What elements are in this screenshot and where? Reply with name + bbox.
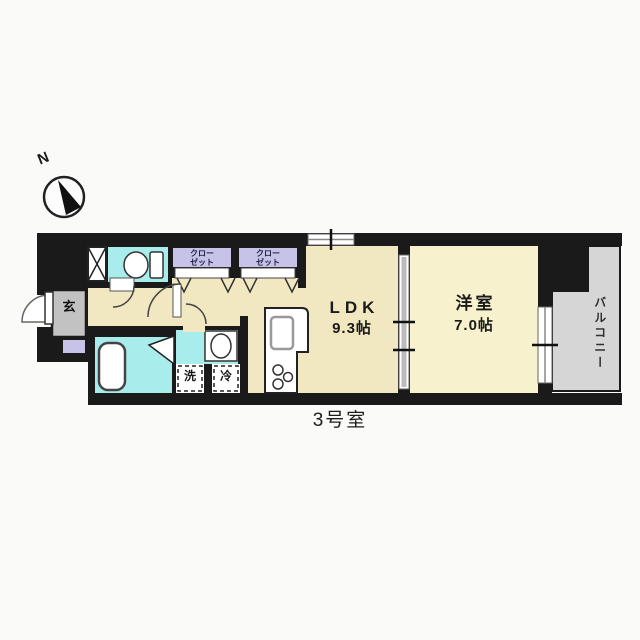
entrance-door <box>22 292 53 324</box>
floorplan: N 玄 クロー ゼット クロー ゼット LDK 9.3帖 洋室 7.0帖 バルコ… <box>0 0 640 640</box>
toilet-icon <box>124 252 163 278</box>
shoe-cabinet <box>62 339 86 354</box>
closet-1-label: クロー ゼット <box>172 249 232 267</box>
bathtub-icon <box>99 343 125 390</box>
ldk-door-leaf <box>173 284 181 317</box>
washroom-doorway <box>183 324 205 332</box>
ldk-room-size: 9.3帖 <box>306 320 398 337</box>
compass-icon <box>44 177 84 217</box>
western-room-name: 洋室 <box>410 294 538 314</box>
toilet-door-leaf <box>110 278 134 291</box>
washbasin-icon <box>205 331 237 361</box>
kitchen-sink-icon <box>271 317 293 349</box>
wall-left-lower <box>37 327 52 362</box>
closet-1-door-track <box>175 268 229 278</box>
wall-balcony-corner <box>552 246 590 291</box>
closet-2-door-track <box>241 268 295 278</box>
western-room-size: 7.0帖 <box>410 317 538 334</box>
hallway-floor <box>88 288 240 326</box>
ldk-room-name: LDK <box>306 298 398 318</box>
wall-bottom <box>240 393 622 405</box>
pipe-space-icon <box>88 247 106 281</box>
balcony-label: バルコニー <box>592 296 606 392</box>
washer-label: 洗 <box>178 370 202 384</box>
wall-kitchen-stub <box>240 316 248 405</box>
entrance-label: 玄 <box>52 300 86 315</box>
closet-2-label: クロー ゼット <box>238 249 298 267</box>
unit-number-label: 3号室 <box>270 410 410 432</box>
wall-left-upper <box>37 233 52 295</box>
fridge-label: 冷 <box>214 370 238 384</box>
